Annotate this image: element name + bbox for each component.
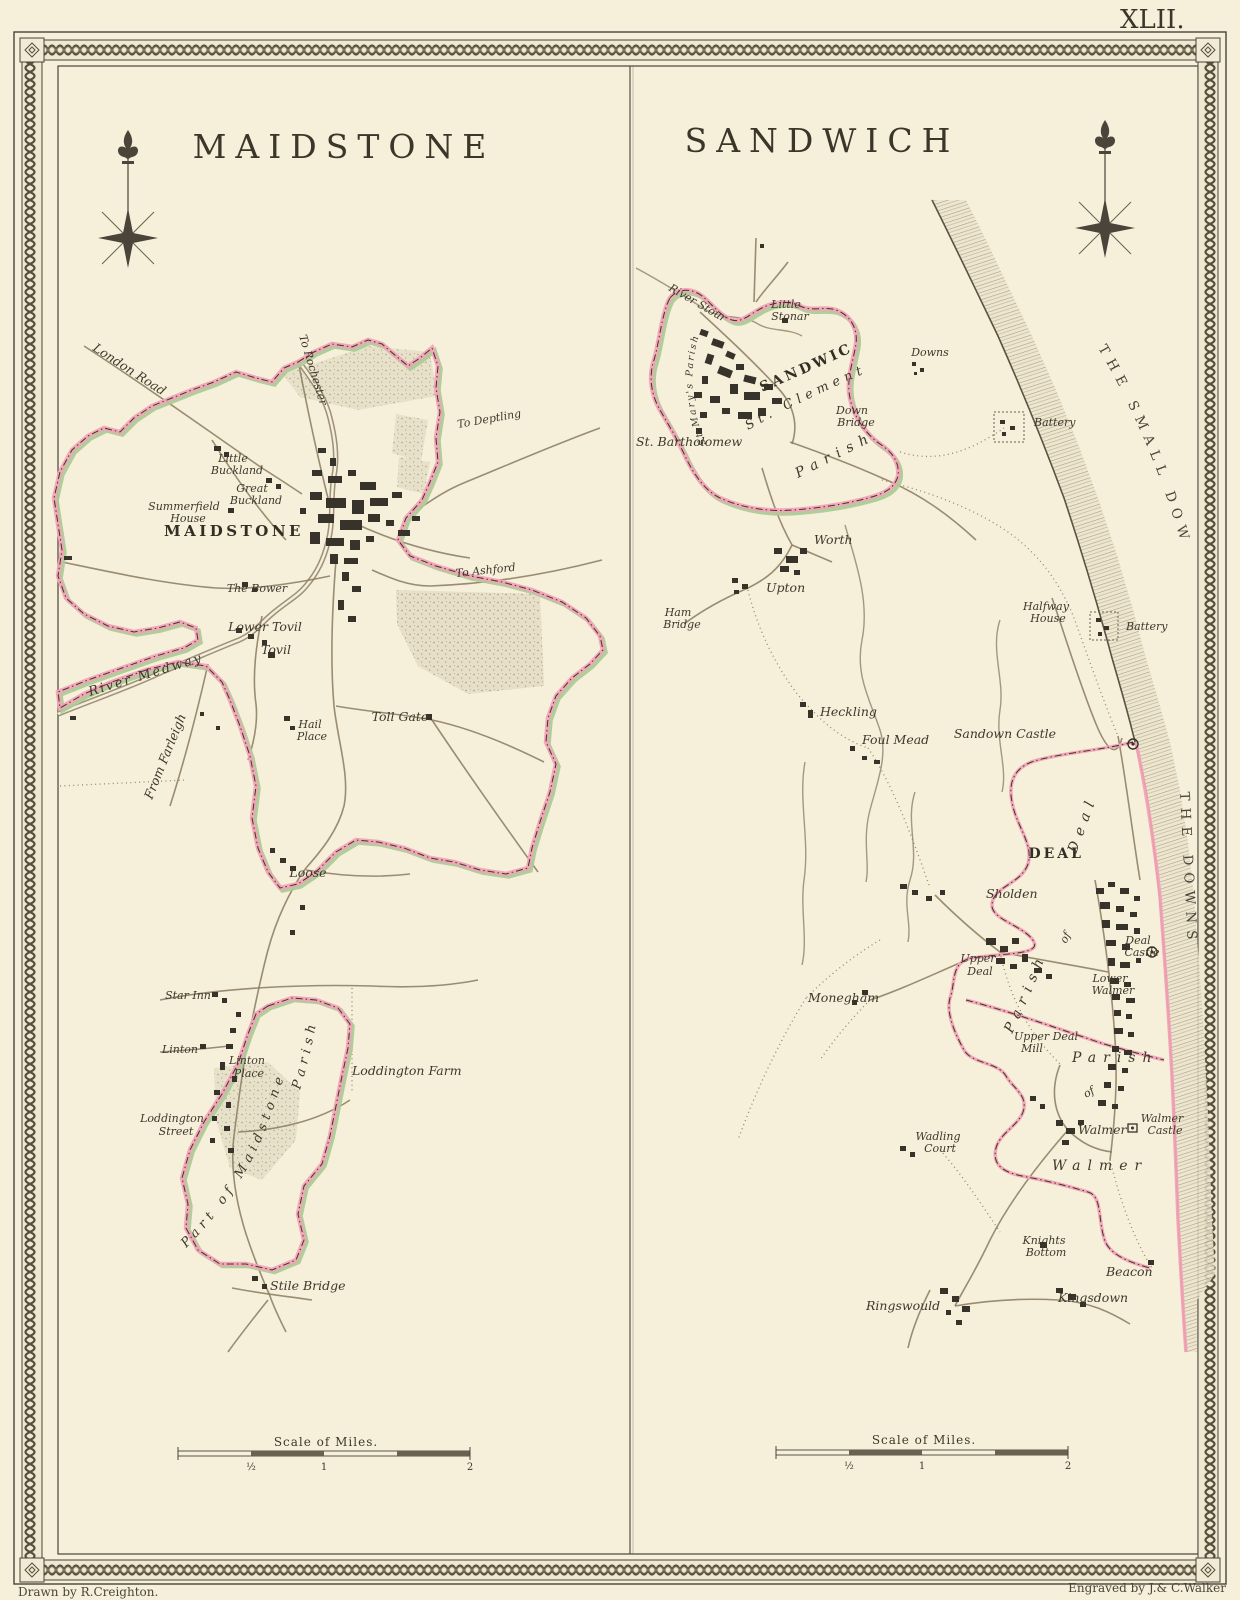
svg-text:Buckland: Buckland (210, 464, 263, 477)
label-loddington-farm: Loddington Farm (351, 1063, 462, 1078)
svg-text:½: ½ (844, 1461, 854, 1472)
label-maidstone-town: MAIDSTONE (164, 522, 304, 540)
label-loose: Loose (288, 865, 326, 880)
credit-drawn-by: Drawn by R.Creighton. (18, 1585, 158, 1599)
label-london-road: London Road (90, 339, 169, 398)
svg-text:Buckland: Buckland (229, 494, 282, 507)
label-kingsdown: Kingsdown (1057, 1290, 1128, 1305)
svg-text:Castle: Castle (1124, 946, 1160, 959)
label-parish-south: Parish (289, 1019, 320, 1093)
credit-engraved-by: Engraved by J.& C.Walker (1068, 1581, 1226, 1595)
compass-rose-left (98, 130, 158, 268)
svg-text:Stonar: Stonar (771, 310, 809, 323)
label-the-bower: The Bower (227, 582, 288, 595)
label-monegham: Monegham (807, 990, 879, 1005)
label-sandown-castle: Sandown Castle (954, 726, 1056, 741)
svg-text:½: ½ (246, 1462, 256, 1473)
label-walmer-village: Walmer (1078, 1122, 1127, 1137)
label-walmer-spread: Walmer (1052, 1158, 1148, 1174)
label-deal-parish-deal: Deal (1064, 793, 1100, 856)
label-worth: Worth (814, 532, 853, 547)
label-st-clements-parish: Parish (792, 429, 877, 482)
label-stile-bridge: Stile Bridge (270, 1278, 346, 1293)
svg-text:St Mary's Parish: St Mary's Parish (684, 333, 708, 447)
svg-text:Parish: Parish (792, 429, 877, 482)
svg-text:2: 2 (1065, 1461, 1071, 1472)
svg-text:Bottom: Bottom (1025, 1246, 1067, 1259)
label-lower-tovil: Lower Tovil (227, 619, 302, 634)
maidstone-scale-label: Scale of Miles. (274, 1435, 378, 1449)
plate-number: XLII. (1120, 5, 1185, 35)
maidstone-labels: London Road To Rochester Little Buckland… (86, 333, 522, 1293)
label-battery-south: Battery (1125, 620, 1168, 633)
svg-text:Walmer: Walmer (1092, 984, 1135, 997)
label-from-farleigh: From Farleigh (140, 711, 188, 802)
sandwich-scale-label: Scale of Miles. (872, 1433, 976, 1447)
svg-text:Mill: Mill (1020, 1042, 1043, 1055)
label-river-stour: River Stour (666, 281, 730, 325)
sandwich-map: River Stour Little Stonar SANDWICH St Ma… (0, 0, 1215, 1472)
label-the-small-downs: THE SMALL DOWNS (0, 0, 1194, 548)
plate-frame (14, 32, 1226, 1584)
svg-text:Court: Court (924, 1142, 956, 1155)
label-loddington-street: Loddington (139, 1112, 204, 1125)
svg-text:Place: Place (296, 730, 328, 743)
svg-text:Bridge: Bridge (836, 416, 875, 429)
label-st-bartholomew: St. Bartholomew (636, 434, 743, 449)
svg-text:2: 2 (467, 1462, 473, 1473)
label-star-inn: Star Inn (165, 989, 211, 1002)
label-deal-parish-of: of (1057, 928, 1074, 945)
sandwich-coast (932, 200, 1215, 1352)
map-plate-page: XLII. MAIDSTONE SANDWICH (0, 0, 1240, 1600)
svg-text:Deal: Deal (966, 965, 993, 978)
maidstone-scale-bar: Scale of Miles. ½ 1 2 (178, 1435, 473, 1473)
svg-text:Deal: Deal (1064, 793, 1100, 856)
label-to-deptling: To Deptling (456, 407, 522, 431)
label-walmer-of: of (1081, 1083, 1098, 1101)
svg-text:Bridge: Bridge (662, 618, 701, 631)
label-linton: Linton (161, 1043, 198, 1056)
label-upton: Upton (766, 580, 805, 595)
label-st-marys-parish: St Mary's Parish (684, 333, 708, 447)
svg-text:House: House (1029, 612, 1066, 625)
walmer-castle-mark (1128, 1124, 1137, 1132)
label-upper-deal: Upper (960, 952, 996, 965)
frame-corner-rosettes (20, 38, 1220, 1582)
svg-text:THE SMALL DOWNS: THE SMALL DOWNS (0, 0, 1194, 548)
label-foul-mead: Foul Mead (861, 732, 929, 747)
svg-text:1: 1 (321, 1462, 327, 1473)
label-ringswould: Ringswould (865, 1298, 940, 1313)
compass-rose-right (1075, 120, 1135, 258)
map-plate-svg: XLII. MAIDSTONE SANDWICH (0, 0, 1240, 1600)
maidstone-map: London Road To Rochester Little Buckland… (54, 333, 606, 1473)
label-heckling: Heckling (819, 704, 877, 719)
maidstone-title: MAIDSTONE (193, 127, 496, 166)
sandwich-scale-bar: Scale of Miles. ½ 1 2 (776, 1433, 1071, 1472)
svg-text:Street: Street (159, 1125, 194, 1138)
label-linton-place: Linton (228, 1054, 265, 1067)
svg-text:Parish: Parish (289, 1019, 320, 1093)
battery-north-mark (994, 412, 1024, 442)
label-beacon: Beacon (1105, 1264, 1153, 1279)
label-downs: Downs (910, 346, 949, 359)
svg-text:Place: Place (233, 1067, 265, 1080)
label-sholden: Sholden (986, 886, 1038, 901)
label-tovil: Tovil (261, 642, 291, 657)
svg-text:1: 1 (919, 1461, 925, 1472)
sandwich-title: SANDWICH (685, 121, 960, 160)
svg-text:Castle: Castle (1147, 1124, 1183, 1137)
label-walmer-parish: Parish (1071, 1050, 1159, 1066)
label-toll-gate: Toll Gate (372, 709, 429, 724)
label-battery-north: Battery (1033, 416, 1076, 429)
sandwich-roads (684, 238, 1152, 1348)
